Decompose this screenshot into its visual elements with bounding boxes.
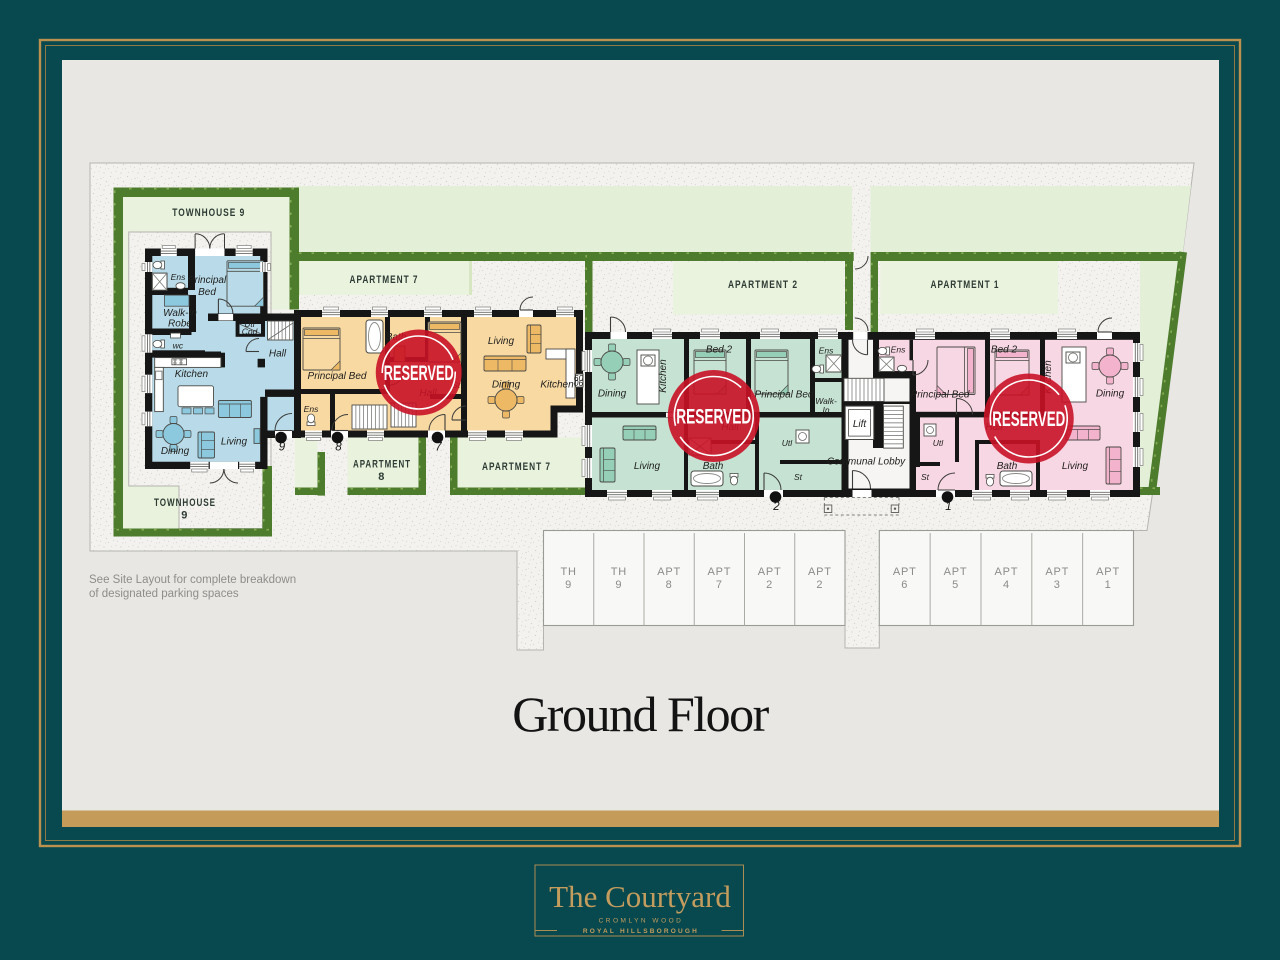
svg-text:APARTMENT: APARTMENT bbox=[353, 459, 411, 471]
svg-text:Communal Lobby: Communal Lobby bbox=[827, 457, 906, 468]
svg-text:Kitchen: Kitchen bbox=[175, 369, 209, 380]
svg-text:Ground Floor: Ground Floor bbox=[512, 686, 769, 742]
svg-text:St: St bbox=[794, 472, 803, 482]
svg-text:St: St bbox=[921, 472, 930, 482]
svg-text:TH: TH bbox=[611, 566, 627, 578]
svg-text:APT: APT bbox=[1096, 566, 1120, 578]
svg-text:The Courtyard: The Courtyard bbox=[549, 879, 731, 914]
svg-text:4: 4 bbox=[1003, 579, 1010, 591]
svg-text:RESERVED: RESERVED bbox=[384, 362, 454, 385]
svg-text:7: 7 bbox=[716, 579, 723, 591]
svg-text:TOWNHOUSE 9: TOWNHOUSE 9 bbox=[172, 207, 245, 219]
svg-text:APARTMENT 7: APARTMENT 7 bbox=[482, 461, 551, 473]
svg-text:8: 8 bbox=[378, 471, 385, 483]
svg-text:Bath: Bath bbox=[703, 461, 724, 472]
svg-text:APT: APT bbox=[758, 566, 782, 578]
svg-text:Dining: Dining bbox=[492, 380, 521, 391]
svg-text:5: 5 bbox=[952, 579, 959, 591]
svg-text:Dining: Dining bbox=[598, 389, 627, 400]
svg-text:Living: Living bbox=[634, 461, 661, 472]
svg-text:Hall: Hall bbox=[269, 349, 287, 360]
svg-text:9: 9 bbox=[615, 579, 622, 591]
svg-text:Lift: Lift bbox=[853, 419, 868, 430]
svg-text:APARTMENT 7: APARTMENT 7 bbox=[350, 274, 419, 286]
svg-text:APT: APT bbox=[808, 566, 832, 578]
svg-text:Ens: Ens bbox=[304, 404, 319, 414]
svg-text:2: 2 bbox=[766, 579, 773, 591]
svg-text:RESERVED: RESERVED bbox=[676, 406, 751, 429]
svg-text:of designated parking spaces: of designated parking spaces bbox=[89, 588, 239, 600]
svg-text:Kitchen: Kitchen bbox=[540, 380, 574, 391]
svg-text:Walk-In: Walk-In bbox=[163, 308, 197, 319]
svg-text:9: 9 bbox=[279, 442, 286, 454]
svg-text:APT: APT bbox=[707, 566, 731, 578]
svg-text:wc: wc bbox=[173, 341, 184, 351]
svg-text:1: 1 bbox=[945, 501, 951, 513]
svg-text:Bed 2: Bed 2 bbox=[991, 345, 1018, 356]
svg-text:Bed 2: Bed 2 bbox=[706, 345, 733, 356]
svg-text:APT: APT bbox=[995, 566, 1019, 578]
svg-text:Cpd: Cpd bbox=[242, 327, 258, 337]
svg-text:2: 2 bbox=[772, 501, 780, 513]
svg-text:APT: APT bbox=[1045, 566, 1069, 578]
svg-text:Living: Living bbox=[221, 437, 248, 448]
svg-text:Ens: Ens bbox=[891, 345, 906, 355]
svg-text:APARTMENT 1: APARTMENT 1 bbox=[931, 279, 1000, 291]
svg-text:Dining: Dining bbox=[161, 446, 190, 457]
svg-text:RESERVED: RESERVED bbox=[992, 408, 1065, 431]
svg-text:3: 3 bbox=[1054, 579, 1061, 591]
svg-text:Bath: Bath bbox=[997, 461, 1018, 472]
svg-text:APT: APT bbox=[944, 566, 968, 578]
svg-text:Utl: Utl bbox=[933, 438, 945, 448]
svg-text:2: 2 bbox=[816, 579, 823, 591]
svg-text:See Site Layout for complete b: See Site Layout for complete breakdown bbox=[89, 574, 296, 586]
svg-text:Principal Bed: Principal Bed bbox=[911, 390, 970, 401]
svg-text:Robe: Robe bbox=[168, 319, 192, 330]
svg-text:APT: APT bbox=[893, 566, 917, 578]
svg-text:8: 8 bbox=[335, 442, 342, 454]
svg-text:6: 6 bbox=[901, 579, 908, 591]
svg-text:APT: APT bbox=[657, 566, 681, 578]
svg-text:Ens: Ens bbox=[819, 346, 834, 356]
svg-text:Living: Living bbox=[1062, 461, 1089, 472]
svg-text:In: In bbox=[822, 405, 829, 415]
svg-text:TOWNHOUSE: TOWNHOUSE bbox=[154, 497, 216, 509]
svg-text:Dining: Dining bbox=[1096, 389, 1125, 400]
svg-text:CROMLYN WOOD: CROMLYN WOOD bbox=[599, 918, 684, 925]
svg-text:Ens: Ens bbox=[171, 272, 186, 282]
svg-text:1: 1 bbox=[1105, 579, 1112, 591]
svg-text:Utl: Utl bbox=[782, 438, 794, 448]
svg-text:TH: TH bbox=[560, 566, 576, 578]
svg-text:Kitchen: Kitchen bbox=[658, 359, 669, 393]
svg-text:9: 9 bbox=[181, 510, 188, 522]
svg-text:Principal Bed: Principal Bed bbox=[308, 371, 367, 382]
svg-text:Principal: Principal bbox=[188, 275, 227, 286]
svg-text:Principal Bed: Principal Bed bbox=[755, 390, 814, 401]
svg-text:7: 7 bbox=[435, 442, 442, 454]
svg-text:Living: Living bbox=[488, 336, 515, 347]
svg-text:9: 9 bbox=[565, 579, 572, 591]
svg-text:06: 06 bbox=[574, 378, 584, 388]
svg-text:APARTMENT 2: APARTMENT 2 bbox=[728, 279, 798, 291]
svg-text:8: 8 bbox=[666, 579, 673, 591]
svg-text:ROYAL HILLSBOROUGH: ROYAL HILLSBOROUGH bbox=[583, 928, 699, 935]
svg-text:Bed: Bed bbox=[198, 287, 216, 298]
